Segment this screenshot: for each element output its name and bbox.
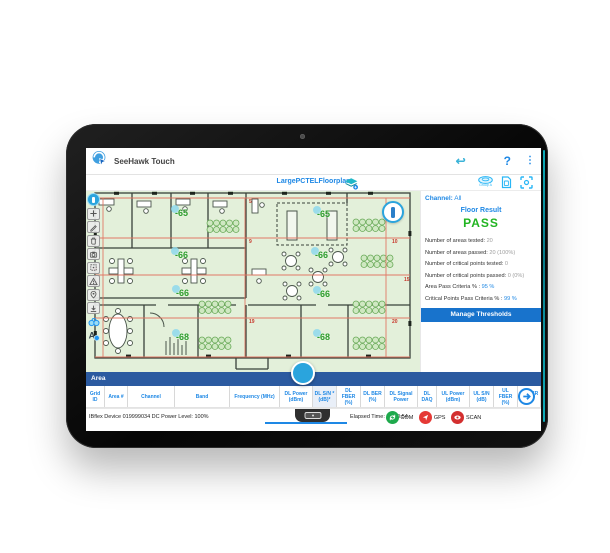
gps-label: GPS xyxy=(434,415,446,421)
table-scroll-right-button[interactable] xyxy=(518,388,535,405)
measurement-table-header: Grid IDArea #ChannelBandFrequency (MHz)D… xyxy=(86,386,541,408)
camera-icon[interactable] xyxy=(87,248,100,260)
table-column-header[interactable]: Band xyxy=(175,386,230,407)
gps-status: GPS xyxy=(419,411,445,424)
warning-icon[interactable] xyxy=(87,275,100,287)
device-info-text: IBflex Device 019999034 DC Power Level: … xyxy=(89,414,209,420)
app-bar: SeeHawk Touch ↩ ? ⋮ xyxy=(86,148,541,175)
back-icon[interactable]: ↩ xyxy=(456,155,466,167)
floor-result-value: PASS xyxy=(421,216,541,230)
grid-cell-number: 5 xyxy=(249,199,252,205)
reading-value: -66 xyxy=(317,289,330,299)
delete-icon[interactable] xyxy=(87,235,100,247)
table-column-header[interactable]: UL Power (dBm) xyxy=(437,386,470,407)
grid-cell-number: 10 xyxy=(392,239,398,245)
overflow-menu-icon[interactable]: ⋮ xyxy=(525,156,535,166)
scanner-device-icon xyxy=(304,411,322,420)
reading-value: -66 xyxy=(175,250,188,260)
grid-cell-number: 19 xyxy=(249,319,255,325)
note-icon[interactable] xyxy=(87,262,100,274)
edit-icon[interactable] xyxy=(87,221,100,233)
floor-result-title: Floor Result xyxy=(421,207,541,214)
table-column-header[interactable]: DL BER (%) xyxy=(361,386,385,407)
device-drawer-tab[interactable] xyxy=(295,409,330,422)
grid-cell-number: 15 xyxy=(404,277,410,283)
com-sync-icon xyxy=(386,411,399,424)
tablet-frame: SeeHawk Touch ↩ ? ⋮ LargePCTELFloorplan xyxy=(66,124,548,448)
help-icon[interactable]: ? xyxy=(504,155,511,167)
table-column-header[interactable]: Grid ID xyxy=(86,386,105,407)
binoculars-icon[interactable] xyxy=(87,316,100,328)
channel-selector[interactable]: Channel: All xyxy=(421,191,541,202)
gps-icon xyxy=(419,411,432,424)
stat-row: Critical Points Pass Criteria % : 99 % xyxy=(425,294,541,306)
reading-value: -68 xyxy=(317,332,330,342)
table-column-header[interactable]: UL FBER (%) xyxy=(494,386,518,407)
active-tab-indicator xyxy=(265,422,347,424)
table-column-header[interactable]: DL Signal Power xyxy=(385,386,418,407)
stat-row: Number of areas passed: 20 (100%) xyxy=(425,248,541,260)
stat-row: Number of critical points tested: 0 xyxy=(425,259,541,271)
table-column-header[interactable]: Frequency (MHz) xyxy=(230,386,280,407)
stat-row: Area Pass Criteria % : 95 % xyxy=(425,282,541,294)
stat-row: Number of critical points passed: 0 (0%) xyxy=(425,271,541,283)
reading-value: -66 xyxy=(315,250,328,260)
status-badges: COM GPS SCAN xyxy=(386,411,481,424)
app-title: SeeHawk Touch xyxy=(114,157,175,166)
table-column-header[interactable]: DL S/N *(dB)* xyxy=(313,386,337,407)
floorplan-name: LargePCTELFloorplan xyxy=(86,178,541,185)
reading-value: -66 xyxy=(176,288,189,298)
floorplan-drawing xyxy=(86,191,420,372)
status-bar: IBflex Device 019999034 DC Power Level: … xyxy=(86,408,541,431)
scan-label: SCAN xyxy=(466,415,481,421)
reading-value: -65 xyxy=(317,209,330,219)
table-column-header[interactable]: UL S/N (dB) xyxy=(470,386,494,407)
floorplan-info-button[interactable] xyxy=(382,201,404,223)
app-screen: SeeHawk Touch ↩ ? ⋮ LargePCTELFloorplan xyxy=(86,148,541,431)
grid-cell-number: 9 xyxy=(249,239,252,245)
group-label: Group A xyxy=(479,183,492,187)
drawer-drag-handle[interactable] xyxy=(291,361,315,385)
manage-thresholds-button[interactable]: Manage Thresholds xyxy=(421,308,541,322)
com-status: COM xyxy=(386,411,413,424)
page: SeeHawk Touch ↩ ? ⋮ LargePCTELFloorplan xyxy=(0,0,610,553)
text-size-icon[interactable]: A xyxy=(87,329,100,341)
table-column-header[interactable]: DL DAQ xyxy=(418,386,437,407)
table-column-header[interactable]: DL Power (dBm) xyxy=(280,386,313,407)
group-selector[interactable]: Group A xyxy=(478,176,493,187)
channel-value: All xyxy=(453,195,462,202)
table-column-header[interactable]: Area # xyxy=(105,386,128,407)
add-icon[interactable] xyxy=(87,208,100,220)
scan-status: SCAN xyxy=(451,411,481,424)
info-icon[interactable] xyxy=(87,193,100,206)
channel-label: Channel: xyxy=(425,195,453,202)
table-column-header[interactable]: DL FBER (%) xyxy=(337,386,361,407)
result-stats: Number of areas tested: 20 Number of are… xyxy=(421,236,541,306)
grid-cell-number: 20 xyxy=(392,319,398,325)
tablet-camera xyxy=(300,134,305,139)
download-icon[interactable] xyxy=(87,302,100,314)
results-panel: Channel: All Floor Result PASS Number of… xyxy=(420,191,541,372)
floorplan-canvas[interactable]: -65-65-66-66-66-66-68-68 591015161920 xyxy=(86,191,420,372)
scan-eye-icon xyxy=(451,411,464,424)
location-icon[interactable] xyxy=(87,289,100,301)
table-column-header[interactable]: Channel xyxy=(128,386,175,407)
com-label: COM xyxy=(401,415,414,421)
reading-value: -65 xyxy=(175,208,188,218)
stat-row: Number of areas tested: 20 xyxy=(425,236,541,248)
left-toolbar: A xyxy=(87,193,102,341)
seehawk-logo-icon xyxy=(91,150,108,172)
reading-value: -68 xyxy=(176,332,189,342)
sub-header: LargePCTELFloorplan xyxy=(86,175,541,191)
